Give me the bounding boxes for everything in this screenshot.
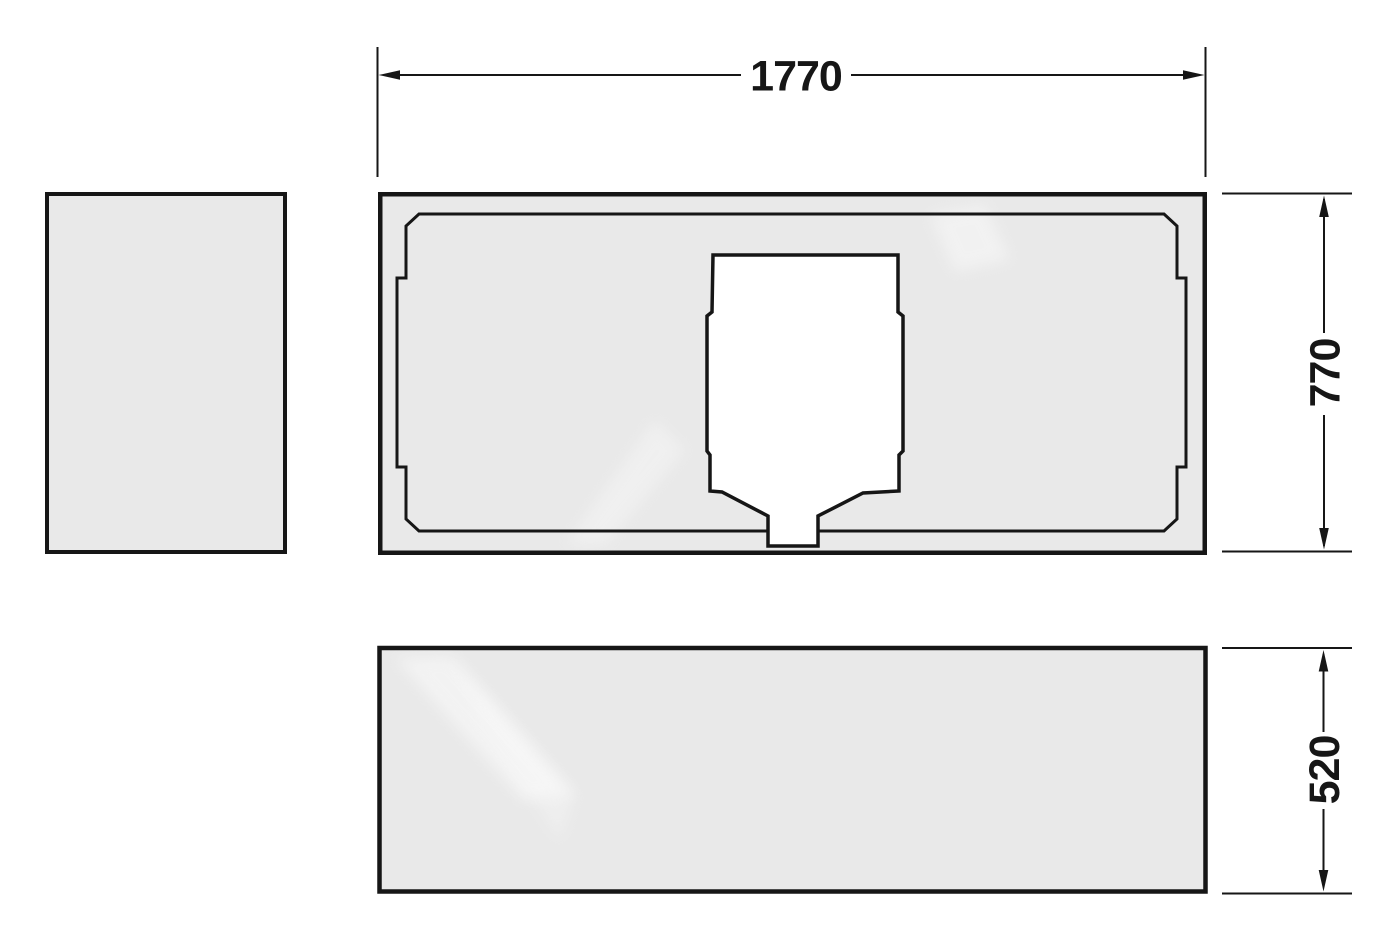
technical-drawing: 1770 770 520 bbox=[0, 0, 1400, 939]
dim-depth-label: 770 bbox=[1301, 339, 1349, 408]
dim-depth-arrow-down bbox=[1319, 528, 1329, 550]
dim-width-arrow-left bbox=[379, 70, 401, 80]
dim-width-label: 1770 bbox=[750, 52, 842, 100]
drawing-svg: 1770 770 520 bbox=[0, 0, 1400, 939]
dim-height: 520 bbox=[1222, 648, 1352, 894]
dim-height-arrow-up bbox=[1319, 650, 1329, 672]
dim-height-label: 520 bbox=[1301, 736, 1349, 805]
side-view-panel bbox=[47, 194, 285, 552]
dim-depth-arrow-up bbox=[1319, 196, 1329, 218]
dim-depth: 770 bbox=[1222, 194, 1352, 552]
dim-height-arrow-down bbox=[1319, 870, 1329, 892]
dim-width: 1770 bbox=[378, 47, 1206, 177]
dim-width-arrow-right bbox=[1183, 70, 1205, 80]
